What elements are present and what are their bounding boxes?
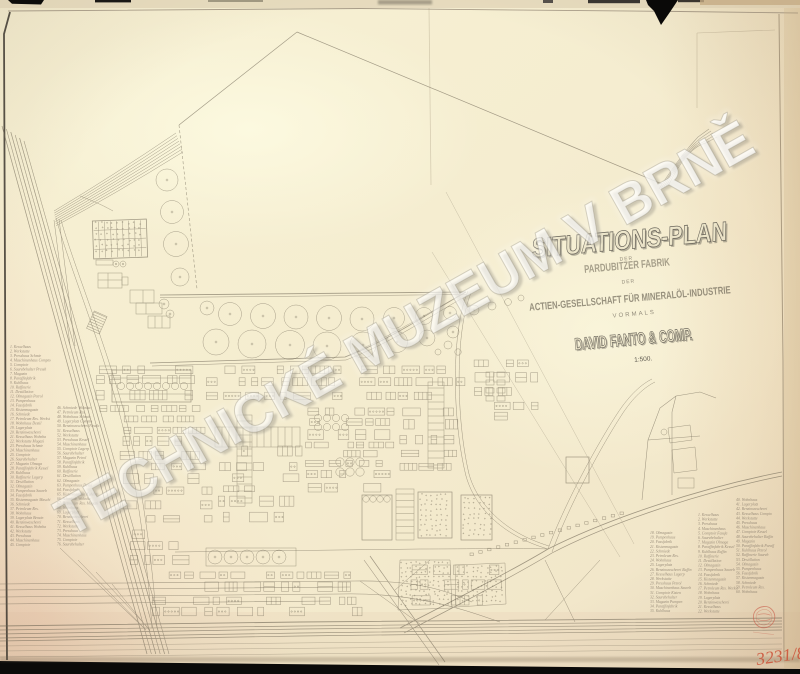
svg-text:35. Kuhlhaus: 35. Kuhlhaus bbox=[650, 609, 671, 613]
svg-text:3. Presshaus: 3. Presshaus bbox=[698, 522, 718, 526]
svg-text:56. Saurebehalter: 56. Saurebehalter bbox=[57, 452, 85, 456]
svg-text:12. Olmagazin: 12. Olmagazin bbox=[698, 564, 720, 568]
svg-text:57. Kistenmagazin: 57. Kistenmagazin bbox=[736, 576, 764, 580]
svg-text:31. Destillation: 31. Destillation bbox=[10, 480, 34, 484]
svg-text:11. Destillation: 11. Destillation bbox=[10, 390, 33, 394]
svg-text:28. Paraffinfabrik Kessel: 28. Paraffinfabrik Kessel bbox=[10, 467, 48, 471]
svg-text:16. Schmiede: 16. Schmiede bbox=[10, 413, 31, 417]
svg-text:60. Wohnhaus: 60. Wohnhaus bbox=[736, 590, 758, 594]
svg-text:49. Magazin: 49. Magazin bbox=[736, 539, 755, 543]
svg-text:45. Comptoir: 45. Comptoir bbox=[10, 543, 31, 547]
svg-text:57. Magazin Petrol: 57. Magazin Petrol bbox=[57, 456, 86, 460]
svg-text:7. Magazin Olmaga: 7. Magazin Olmaga bbox=[698, 541, 728, 545]
svg-text:9. Kuhlhaus Raffin: 9. Kuhlhaus Raffin bbox=[698, 550, 727, 554]
svg-text:21. Kesselhaus Wohnha: 21. Kesselhaus Wohnha bbox=[10, 435, 46, 439]
svg-text:30. Maschinenhaus Saureb: 30. Maschinenhaus Saureb bbox=[650, 586, 691, 590]
svg-text:18. Wohnhaus Destil: 18. Wohnhaus Destil bbox=[10, 422, 41, 426]
svg-text:13. Pumpenhaus Saureb: 13. Pumpenhaus Saureb bbox=[698, 568, 735, 572]
svg-text:5. Comptoir Fassfa: 5. Comptoir Fassfa bbox=[698, 531, 728, 535]
svg-text:15. Kistenmagazin: 15. Kistenmagazin bbox=[698, 577, 726, 581]
svg-text:43. Presshaus: 43. Presshaus bbox=[10, 534, 32, 538]
svg-text:40. Wohnhaus: 40. Wohnhaus bbox=[736, 498, 758, 502]
svg-text:29. Presshaus Petrol: 29. Presshaus Petrol bbox=[650, 582, 681, 586]
svg-text:38. Wohnhaus: 38. Wohnhaus bbox=[10, 512, 32, 516]
svg-text:32. Olmagazin: 32. Olmagazin bbox=[10, 485, 32, 489]
svg-text:12. Olmagazin Petrol: 12. Olmagazin Petrol bbox=[10, 395, 43, 399]
svg-text:25. Comptoir: 25. Comptoir bbox=[10, 453, 31, 457]
svg-text:14. Fassfabrik: 14. Fassfabrik bbox=[698, 573, 720, 577]
svg-text:1. Kesselhaus: 1. Kesselhaus bbox=[10, 345, 31, 349]
svg-text:17. Petroleum Res. Werkst: 17. Petroleum Res. Werkst bbox=[10, 417, 51, 421]
svg-text:23. Presshaus Schmie: 23. Presshaus Schmie bbox=[10, 444, 43, 448]
svg-text:DER: DER bbox=[621, 278, 635, 285]
svg-text:60. Raffinerie: 60. Raffinerie bbox=[57, 470, 78, 474]
svg-text:54. Olmagazin: 54. Olmagazin bbox=[736, 562, 758, 566]
svg-text:42. Werkstatte: 42. Werkstatte bbox=[10, 530, 32, 534]
svg-text:33. Pumpenhaus Saureb: 33. Pumpenhaus Saureb bbox=[10, 489, 47, 493]
svg-text:52. Raffinerie Saureb: 52. Raffinerie Saureb bbox=[736, 553, 769, 557]
svg-text:47. Petroleum Res.: 47. Petroleum Res. bbox=[57, 411, 86, 415]
svg-text:16. Schmiede: 16. Schmiede bbox=[698, 582, 719, 586]
svg-text:36. Schmiede: 36. Schmiede bbox=[10, 503, 31, 507]
svg-text:51. Kesselhaus: 51. Kesselhaus bbox=[57, 429, 80, 433]
svg-text:49. Lagerplatz Compto: 49. Lagerplatz Compto bbox=[57, 420, 92, 424]
svg-text:35. Kistenmagazin Maschi: 35. Kistenmagazin Maschi bbox=[10, 498, 50, 502]
svg-text:58. Schmiede: 58. Schmiede bbox=[736, 581, 757, 585]
svg-text:2. Werkstatte: 2. Werkstatte bbox=[698, 518, 718, 522]
svg-text:37. Petroleum Res.: 37. Petroleum Res. bbox=[10, 507, 39, 511]
svg-text:19. Lagerplatz: 19. Lagerplatz bbox=[10, 426, 33, 430]
svg-text:27. Kesselhaus Lagerp: 27. Kesselhaus Lagerp bbox=[650, 572, 685, 576]
svg-text:8. Paraffinfabrik: 8. Paraffinfabrik bbox=[10, 377, 36, 381]
svg-text:10. Raffinerie: 10. Raffinerie bbox=[698, 554, 719, 558]
svg-text:6. Saurebehalter Pressh: 6. Saurebehalter Pressh bbox=[10, 368, 46, 372]
svg-text:56. Fassfabrik: 56. Fassfabrik bbox=[736, 572, 758, 576]
svg-text:34. Fassfabrik: 34. Fassfabrik bbox=[10, 494, 32, 498]
svg-text:50. Benzinwascherei Fassfa: 50. Benzinwascherei Fassfa bbox=[57, 424, 99, 428]
svg-text:53. Presshaus Kessel: 53. Presshaus Kessel bbox=[57, 438, 89, 442]
svg-text:24. Maschinenhaus: 24. Maschinenhaus bbox=[10, 449, 40, 453]
svg-text:20. Benzinwascherei: 20. Benzinwascherei bbox=[698, 600, 729, 604]
svg-text:55. Comptoir Lagerp: 55. Comptoir Lagerp bbox=[57, 447, 89, 451]
svg-text:45. Presshaus: 45. Presshaus bbox=[736, 521, 758, 525]
svg-text:46. Maschinenhaus: 46. Maschinenhaus bbox=[736, 526, 766, 530]
svg-text:41. Kesselhaus Wohnha: 41. Kesselhaus Wohnha bbox=[10, 525, 46, 529]
svg-text:2. Werkstatte: 2. Werkstatte bbox=[10, 350, 30, 354]
svg-text:10. Raffinerie: 10. Raffinerie bbox=[10, 386, 31, 390]
svg-text:24. Wohnhaus: 24. Wohnhaus bbox=[650, 559, 672, 563]
svg-text:7. Magazin: 7. Magazin bbox=[10, 372, 27, 376]
svg-text:15. Kistenmagazin: 15. Kistenmagazin bbox=[10, 408, 38, 412]
svg-text:14. Fassfabrik: 14. Fassfabrik bbox=[10, 404, 32, 408]
svg-text:39. Lagerplatz Benzin: 39. Lagerplatz Benzin bbox=[10, 516, 44, 520]
svg-text:9. Kuhlhaus: 9. Kuhlhaus bbox=[10, 381, 29, 385]
svg-text:58. Paraffinfabrik: 58. Paraffinfabrik bbox=[57, 461, 85, 465]
svg-text:43. Kesselhaus Compto: 43. Kesselhaus Compto bbox=[736, 512, 772, 516]
svg-text:28. Werkstatte: 28. Werkstatte bbox=[650, 577, 672, 581]
svg-text:18. Olmagazin: 18. Olmagazin bbox=[650, 531, 672, 535]
svg-text:48. Saurebehalter Raffin: 48. Saurebehalter Raffin bbox=[736, 535, 773, 539]
svg-text:21. Kesselhaus: 21. Kesselhaus bbox=[698, 605, 721, 609]
svg-text:27. Magazin Olmaga: 27. Magazin Olmaga bbox=[10, 462, 42, 466]
svg-text:22. Schmiede: 22. Schmiede bbox=[650, 549, 671, 553]
svg-text:53. Destillation: 53. Destillation bbox=[736, 558, 760, 562]
svg-text:21. Kistenmagazin: 21. Kistenmagazin bbox=[650, 545, 678, 549]
svg-text:26. Benzinwascherei Raffin: 26. Benzinwascherei Raffin bbox=[650, 568, 692, 572]
svg-text:22. Werkstatte: 22. Werkstatte bbox=[698, 610, 720, 614]
svg-text:46. Schmiede Wohnha: 46. Schmiede Wohnha bbox=[57, 406, 91, 410]
svg-text:5. Comptoir: 5. Comptoir bbox=[10, 363, 29, 367]
svg-text:25. Lagerplatz: 25. Lagerplatz bbox=[650, 563, 673, 567]
svg-text:17. Petroleum Res. Werkst: 17. Petroleum Res. Werkst bbox=[698, 587, 739, 591]
svg-text:54. Maschinenhaus: 54. Maschinenhaus bbox=[57, 442, 87, 446]
svg-text:59. Kuhlhaus: 59. Kuhlhaus bbox=[57, 465, 78, 469]
svg-text:32. Saurebehalter: 32. Saurebehalter bbox=[650, 595, 678, 599]
svg-text:40. Benzinwascherei: 40. Benzinwascherei bbox=[10, 521, 41, 525]
svg-text:1. Kesselhaus: 1. Kesselhaus bbox=[698, 513, 719, 517]
svg-text:11. Destillation: 11. Destillation bbox=[698, 559, 721, 563]
svg-text:44. Werkstatte: 44. Werkstatte bbox=[736, 516, 758, 520]
svg-text:55. Pumpenhaus: 55. Pumpenhaus bbox=[736, 567, 762, 571]
svg-text:47. Comptoir Kessel: 47. Comptoir Kessel bbox=[736, 530, 767, 534]
svg-text:22. Werkstatte Magazi: 22. Werkstatte Magazi bbox=[10, 440, 44, 444]
svg-text:34. Paraffinfabrik: 34. Paraffinfabrik bbox=[650, 605, 678, 609]
svg-text:26. Saurebehalter: 26. Saurebehalter bbox=[10, 458, 38, 462]
svg-text:41. Lagerplatz: 41. Lagerplatz bbox=[736, 503, 759, 507]
svg-text:13. Pumpenhaus: 13. Pumpenhaus bbox=[10, 399, 36, 403]
svg-text:29. Kuhlhaus: 29. Kuhlhaus bbox=[10, 471, 31, 475]
svg-text:52. Werkstatte: 52. Werkstatte bbox=[57, 433, 79, 437]
svg-text:19. Lagerplatz: 19. Lagerplatz bbox=[698, 596, 721, 600]
svg-text:33. Magazin Pumpen: 33. Magazin Pumpen bbox=[650, 600, 682, 604]
svg-text:42. Benzinwascherei: 42. Benzinwascherei bbox=[736, 507, 767, 511]
svg-text:19. Pumpenhaus: 19. Pumpenhaus bbox=[650, 536, 676, 540]
svg-text:20. Benzinwascherei: 20. Benzinwascherei bbox=[10, 431, 41, 435]
svg-text:18. Wohnhaus: 18. Wohnhaus bbox=[698, 591, 720, 595]
svg-text:3. Presshaus Schmie: 3. Presshaus Schmie bbox=[10, 354, 41, 358]
svg-text:23. Petroleum Res.: 23. Petroleum Res. bbox=[650, 554, 679, 558]
svg-text:8. Paraffinfabrik Kessel: 8. Paraffinfabrik Kessel bbox=[698, 545, 734, 549]
svg-text:51. Kuhlhaus Petrol: 51. Kuhlhaus Petrol bbox=[736, 549, 767, 553]
svg-text:31. Comptoir Kisten: 31. Comptoir Kisten bbox=[650, 591, 681, 595]
svg-text:4. Maschinenhaus: 4. Maschinenhaus bbox=[698, 527, 726, 531]
svg-text:6. Saurebehalter: 6. Saurebehalter bbox=[698, 536, 724, 540]
svg-text:48. Wohnhaus Schmie: 48. Wohnhaus Schmie bbox=[57, 415, 91, 419]
svg-text:44. Maschinenhaus: 44. Maschinenhaus bbox=[10, 539, 40, 543]
svg-text:30. Raffinerie Lagerp: 30. Raffinerie Lagerp bbox=[10, 476, 43, 480]
svg-text:50. Paraffinfabrik Paraff: 50. Paraffinfabrik Paraff bbox=[736, 544, 775, 548]
svg-text:20. Fassfabrik: 20. Fassfabrik bbox=[650, 540, 672, 544]
svg-text:59. Petroleum Res.: 59. Petroleum Res. bbox=[736, 585, 765, 589]
svg-text:4. Maschinenhaus Compto: 4. Maschinenhaus Compto bbox=[10, 359, 51, 363]
